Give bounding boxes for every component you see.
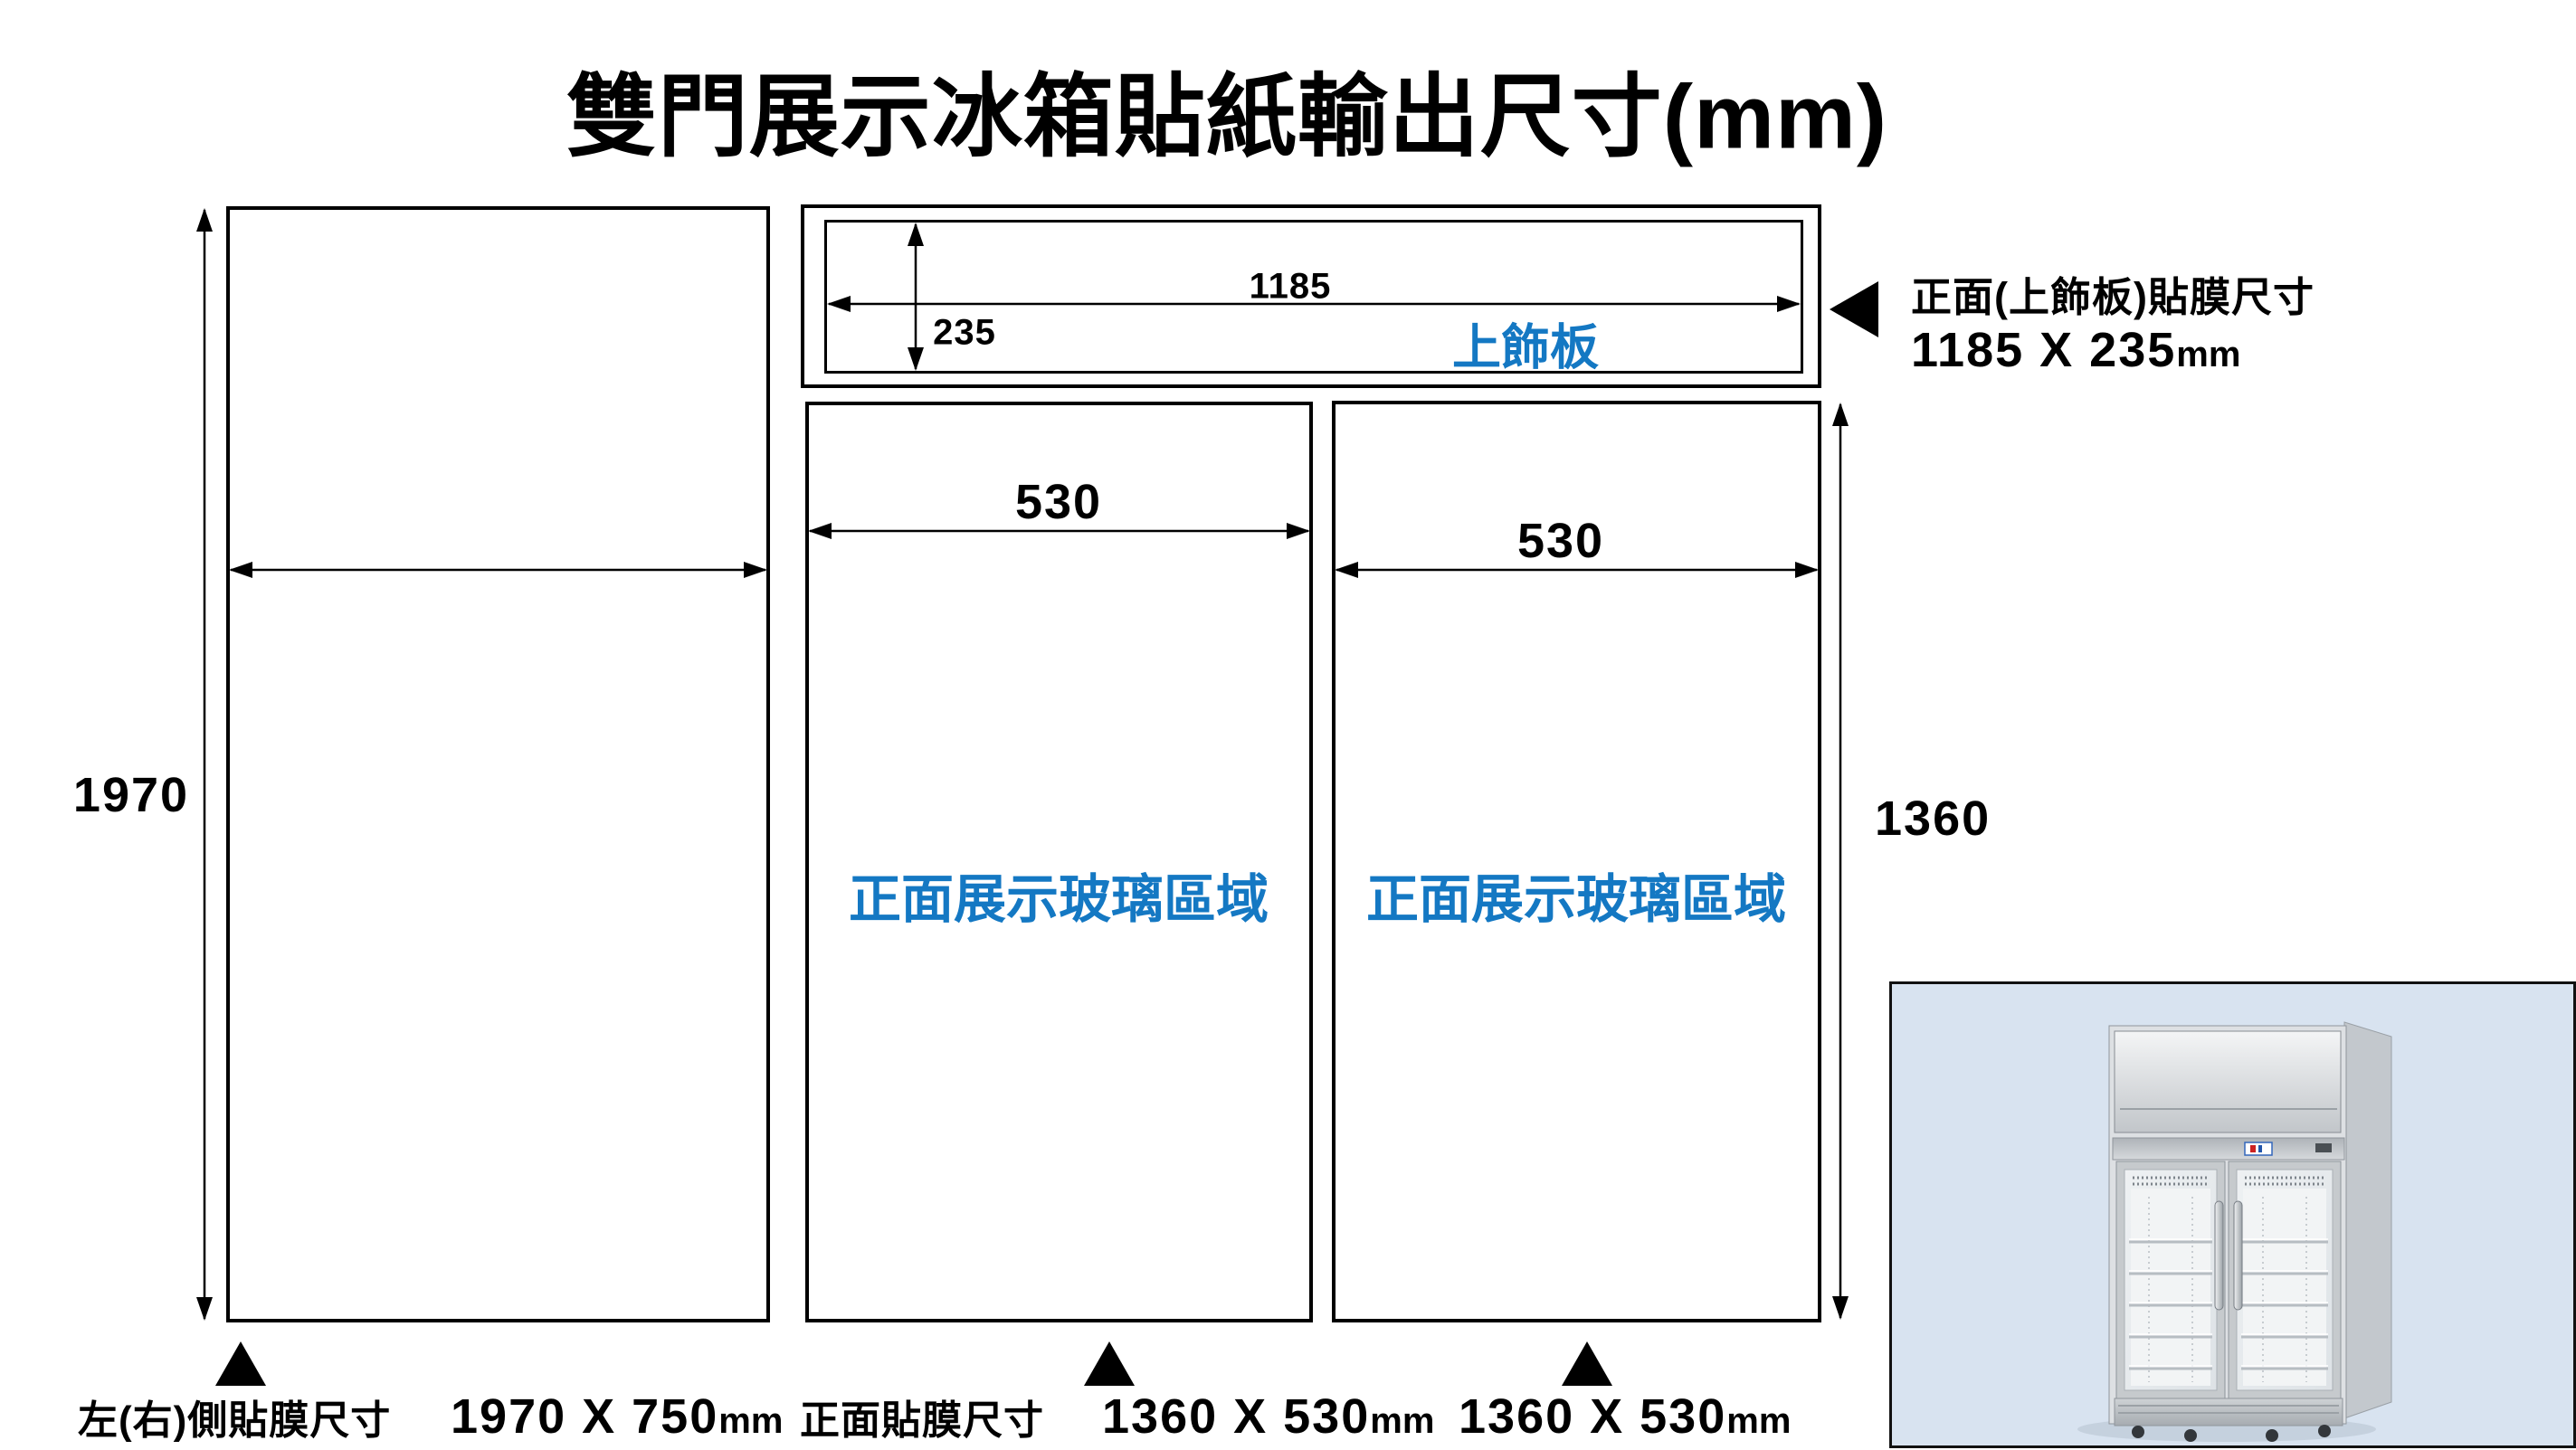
fridge-display-digit (2250, 1145, 2256, 1152)
fridge-left-handle (2215, 1201, 2223, 1310)
front-left-caption-pointer-triangle (1084, 1341, 1135, 1386)
fridge-side-panel (2344, 1022, 2391, 1418)
side-caption-pointer-triangle (215, 1341, 266, 1386)
fridge-left-door (2116, 1161, 2225, 1398)
fridge-right-door (2229, 1161, 2341, 1398)
fridge-sign-panel (2115, 1031, 2341, 1133)
diagram-page: { "title": "雙門展示冰箱貼紙輸出尺寸(mm)", "colors":… (0, 0, 2576, 1448)
fridge-header-bar (2113, 1138, 2344, 1160)
fridge-right-handle (2234, 1201, 2242, 1310)
fridge-illustration (1892, 984, 2573, 1445)
fridge-photo (1889, 981, 2576, 1448)
fridge-display-mark (2258, 1145, 2262, 1152)
fridge-brand-logo (2315, 1143, 2332, 1152)
front-right-caption-pointer-triangle (1562, 1341, 1612, 1386)
callout-pointer-triangle (1830, 281, 1878, 337)
